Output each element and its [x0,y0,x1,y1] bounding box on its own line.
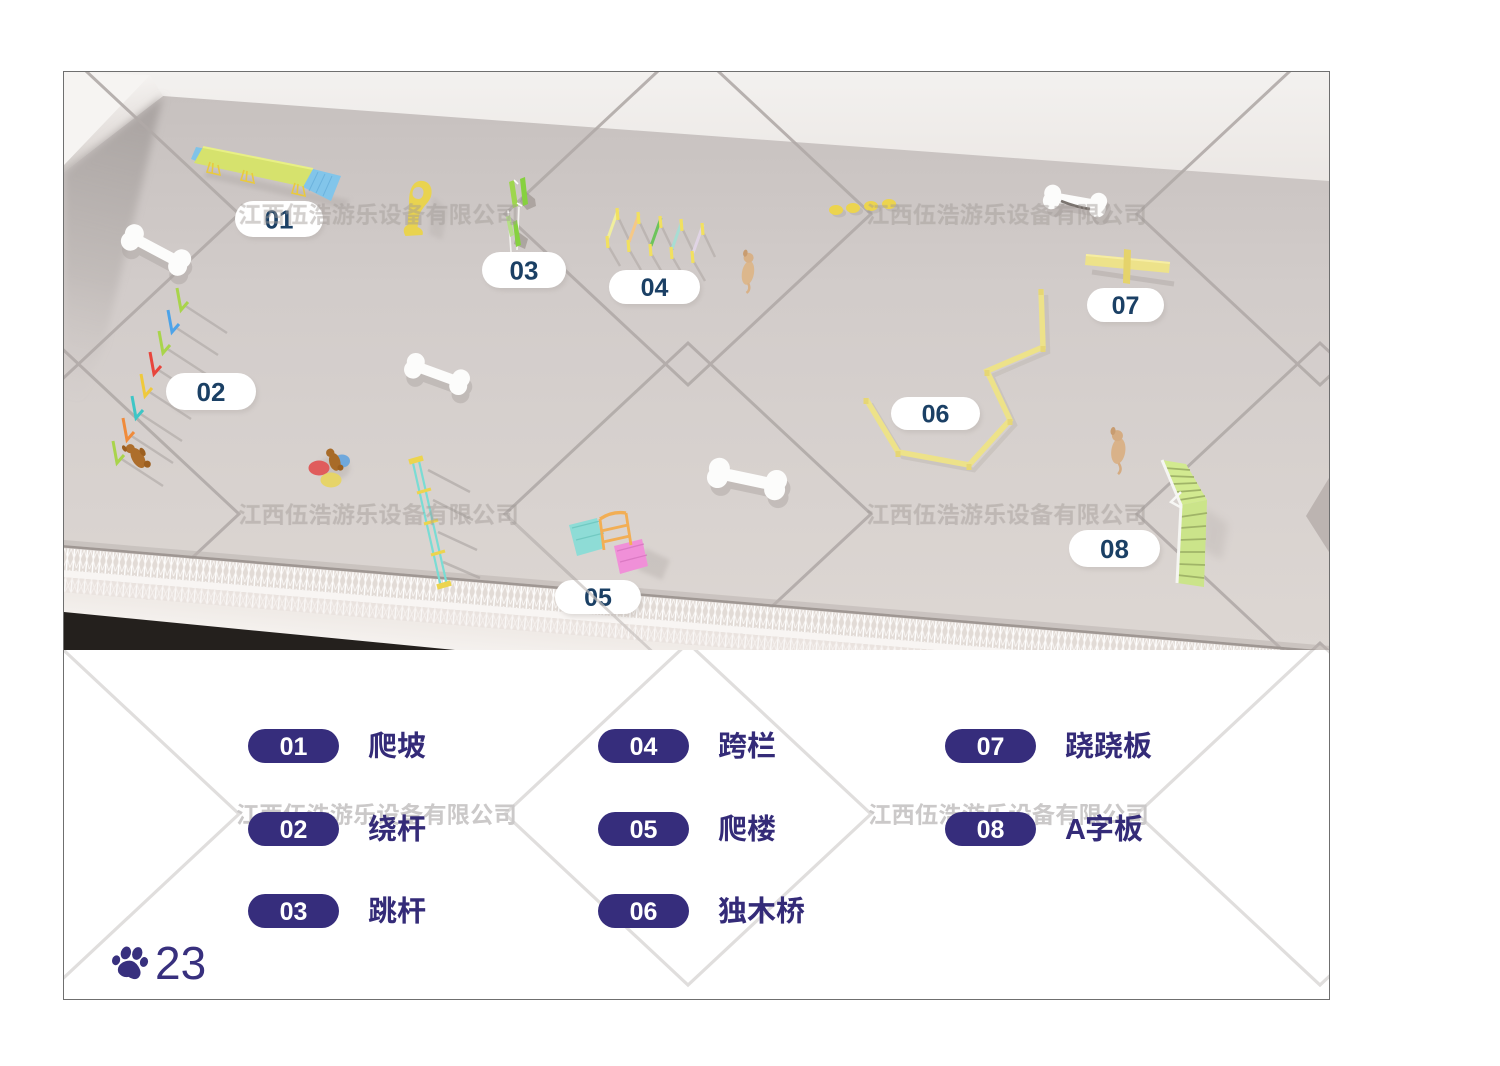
svg-text:06: 06 [630,898,658,926]
svg-text:07: 07 [977,733,1005,761]
svg-text:A: A [1065,814,1086,846]
svg-text:03: 03 [510,255,539,285]
svg-text:04: 04 [630,733,658,761]
svg-text:02: 02 [280,816,308,844]
svg-text:04: 04 [641,274,669,302]
svg-text:05: 05 [584,584,612,612]
svg-text:03: 03 [280,898,308,926]
svg-text:08: 08 [1100,534,1129,564]
svg-text:23: 23 [155,937,206,989]
svg-text:07: 07 [1112,292,1140,320]
svg-text:05: 05 [630,816,658,844]
svg-text:08: 08 [977,816,1005,844]
svg-text:02: 02 [197,377,226,407]
svg-text:06: 06 [922,401,950,429]
svg-text:01: 01 [280,733,308,761]
